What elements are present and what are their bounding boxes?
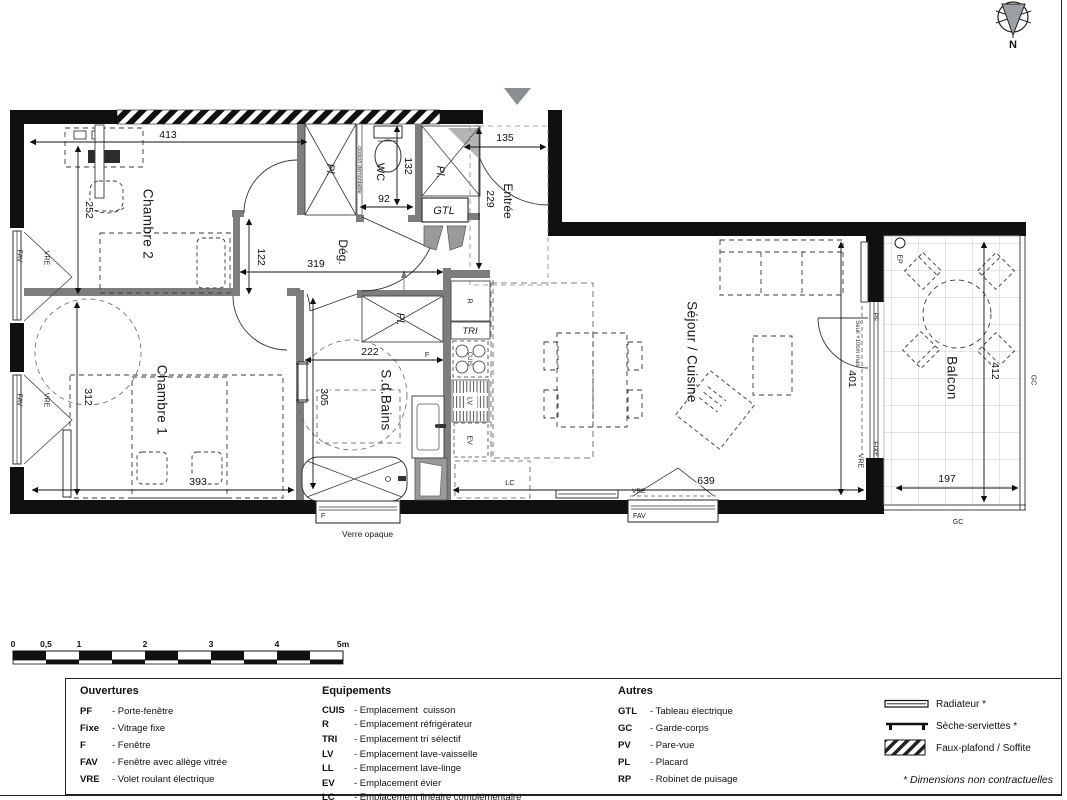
legend-symbol-faux-plafond: Faux-plafond / Soffite — [884, 737, 1031, 759]
legend-desc: - Fenêtre — [112, 740, 151, 751]
legend-code: PF — [80, 706, 112, 717]
legend-item: PL- Placard — [618, 754, 738, 771]
radiator-symbol — [884, 699, 936, 709]
legend-code: GC — [618, 723, 650, 734]
legend-ouvertures-title: Ouvertures — [80, 685, 227, 697]
legend-item: FAV- Fenêtre avec allège vitrée — [80, 754, 227, 771]
legend-symbol-seche-serviettes: Sèche-serviettes * — [884, 715, 1031, 737]
legend: Ouvertures PF- Porte-fenêtre Fixe- Vitra… — [65, 678, 1061, 795]
legend-equipements: Equipements CUIS- Emplacement cuisson R-… — [322, 685, 521, 800]
legend-code: PV — [618, 740, 650, 751]
legend-item: F- Fenêtre — [80, 737, 227, 754]
legend-code: LL — [322, 763, 354, 774]
legend-desc: - Emplacement réfrigérateur — [354, 719, 472, 730]
legend-item: TRI- Emplacement tri sélectif — [322, 732, 521, 747]
legend-code: R — [322, 719, 354, 730]
legend-desc: - Emplacement cuisson — [354, 705, 455, 716]
legend-code: LC — [322, 792, 354, 800]
legend-code: Fixe — [80, 723, 112, 734]
legend-symbol-radiator: Radiateur * — [884, 693, 1031, 715]
seche-serviettes-symbol — [884, 720, 936, 732]
legend-code: LV — [322, 749, 354, 760]
legend-symbol-label: Sèche-serviettes * — [936, 721, 1017, 732]
legend-item: EV- Emplacement évier — [322, 776, 521, 791]
legend-symbol-label: Faux-plafond / Soffite — [936, 743, 1031, 754]
legend-item: LC- Emplacement linéaire complémentaire — [322, 791, 521, 800]
legend-autres: Autres GTL- Tableau électrique GC- Garde… — [618, 685, 738, 788]
legend-desc: - Placard — [650, 757, 688, 768]
legend-item: LL- Emplacement lave-linge — [322, 761, 521, 776]
faux-plafond-symbol — [884, 739, 936, 757]
legend-desc: - Emplacement lave-vaisselle — [354, 749, 478, 760]
page-border — [0, 0, 1062, 796]
legend-symbol-label: Radiateur * — [936, 699, 986, 710]
legend-item: PV- Pare-vue — [618, 737, 738, 754]
legend-code: RP — [618, 774, 650, 785]
legend-autres-title: Autres — [618, 685, 738, 697]
legend-code: GTL — [618, 706, 650, 717]
legend-desc: - Pare-vue — [650, 740, 694, 751]
legend-desc: - Emplacement tri sélectif — [354, 734, 461, 745]
legend-equipements-title: Equipements — [322, 685, 521, 697]
legend-desc: - Porte-fenêtre — [112, 706, 173, 717]
legend-code: EV — [322, 778, 354, 789]
legend-symbols: Radiateur * Sèche-serviettes * Faux-plaf… — [884, 693, 1031, 759]
legend-item: Fixe- Vitrage fixe — [80, 720, 227, 737]
legend-desc: - Tableau électrique — [650, 706, 733, 717]
legend-code: CUIS — [322, 705, 354, 716]
legend-desc: - Emplacement lave-linge — [354, 763, 461, 774]
legend-desc: - Robinet de puisage — [650, 774, 738, 785]
legend-item: GTL- Tableau électrique — [618, 703, 738, 720]
legend-desc: - Emplacement évier — [354, 778, 441, 789]
legend-item: LV- Emplacement lave-vaisselle — [322, 747, 521, 762]
legend-desc: - Fenêtre avec allège vitrée — [112, 757, 227, 768]
legend-desc: - Emplacement linéaire complémentaire — [354, 792, 521, 800]
legend-desc: - Volet roulant électrique — [112, 774, 214, 785]
legend-item: PF- Porte-fenêtre — [80, 703, 227, 720]
legend-desc: - Garde-corps — [650, 723, 709, 734]
legend-item: CUIS- Emplacement cuisson — [322, 703, 521, 718]
legend-item: VRE- Volet roulant électrique — [80, 771, 227, 788]
legend-code: PL — [618, 757, 650, 768]
legend-desc: - Vitrage fixe — [112, 723, 165, 734]
legend-code: FAV — [80, 757, 112, 768]
legend-code: TRI — [322, 734, 354, 745]
legend-item: R- Emplacement réfrigérateur — [322, 718, 521, 733]
floor-plan-page: N 413 252 122 319 135 229 132 92 222 305… — [0, 0, 1067, 800]
legend-ouvertures: Ouvertures PF- Porte-fenêtre Fixe- Vitra… — [80, 685, 227, 788]
legend-item: RP- Robinet de puisage — [618, 771, 738, 788]
legend-item: GC- Garde-corps — [618, 720, 738, 737]
legend-code: VRE — [80, 774, 112, 785]
legend-code: F — [80, 740, 112, 751]
legend-footnote: * Dimensions non contractuelles — [903, 774, 1053, 786]
